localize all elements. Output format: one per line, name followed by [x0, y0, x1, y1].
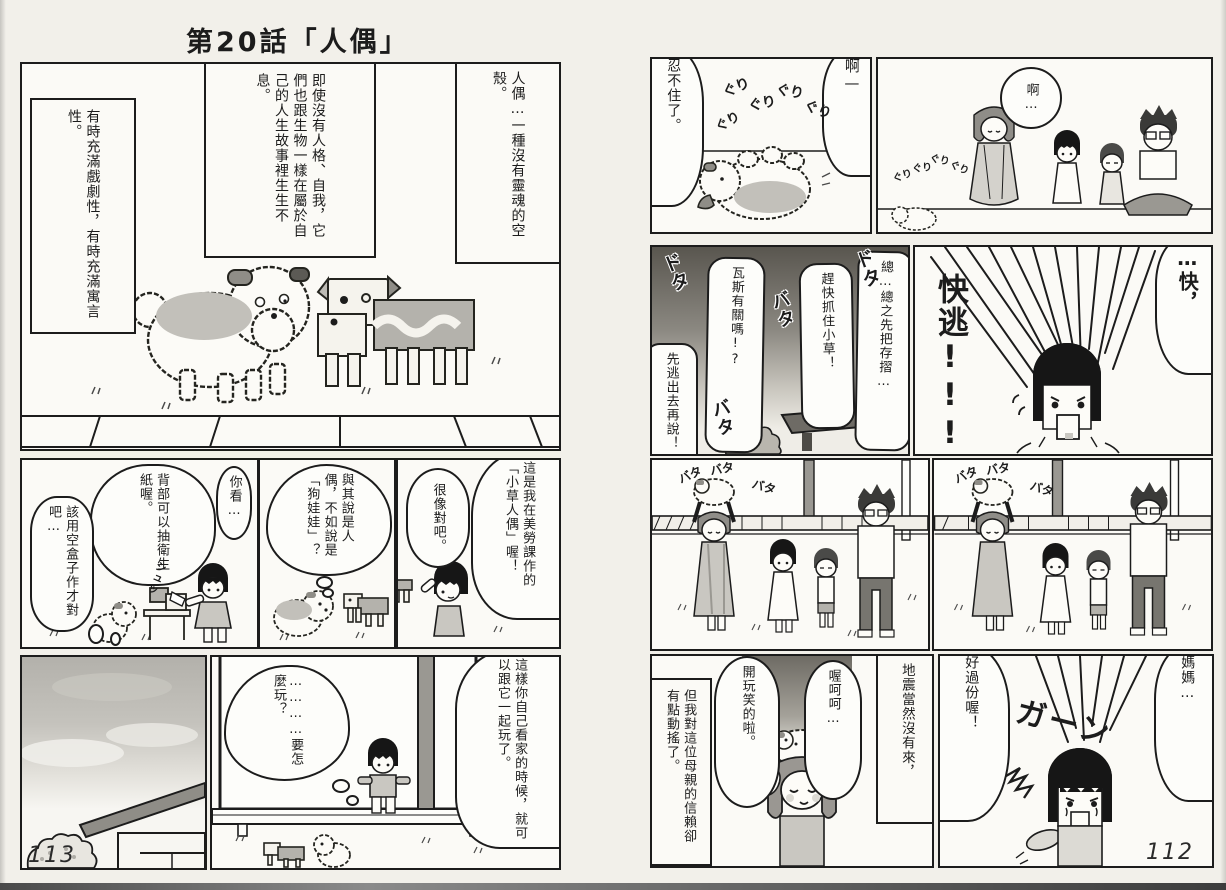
- bubble-ah2-text: 啊…: [1022, 83, 1039, 113]
- bubble-passbook-text: 總…總之先把存摺…: [874, 260, 894, 442]
- thought-box-text: 該用空盒子作才對吧…: [45, 505, 79, 623]
- page-number-left: 113: [28, 843, 76, 868]
- bubble-cant-resist-text: 忍不住了。: [664, 58, 682, 198]
- box-trust: 但我對這位母親的信賴卻有點動搖了。: [650, 678, 712, 866]
- thought-box-empty: 該用空盒子作才對吧…: [30, 496, 94, 632]
- bubble-alike: 很像對吧。: [406, 468, 470, 568]
- panel-upset: 媽媽… 好過份喔！ ガーン: [938, 654, 1214, 868]
- bubble-mama: 媽媽…: [1154, 654, 1214, 802]
- bubble-ah-dash-text: 啊—: [841, 58, 861, 168]
- box-trust-text: 但我對這位母親的信賴卻有點動搖了。: [663, 689, 697, 855]
- scan-edge-left: [0, 0, 6, 890]
- bubble-quick-text: …快，: [1174, 246, 1200, 366]
- bubble-play-text: 這樣你自己看家的時候，就可以跟它一起玩了。: [494, 658, 528, 840]
- thought-tail-2: [110, 632, 121, 646]
- bubble-grab: 趕快抓住小草！: [799, 263, 856, 430]
- panel-run: …快， 快逃!!!: [913, 245, 1213, 456]
- thought-tail-1: [88, 624, 104, 644]
- bubble-ohoho: 喔呵呵…: [804, 660, 862, 800]
- caption-drama-text: 有時充滿戲劇性，有時充滿寓言性。: [65, 109, 102, 323]
- panel-panic: 總…總之先把存摺… 趕快抓住小草！ 瓦斯有關嗎!? 先逃出去再說！ ドタ バタ …: [650, 245, 910, 456]
- scan-edge-bottom: [0, 883, 1226, 890]
- dogdoll-tail-1: [316, 576, 333, 589]
- bubble-escape: 先逃出去再說！: [650, 343, 698, 456]
- bubble-cant-resist: 忍不住了。: [650, 57, 704, 207]
- bubble-too-much-text: 好過份喔！: [962, 655, 980, 813]
- page-number-right: 112: [1146, 840, 1194, 865]
- sfx-bata-o2b: バタ: [985, 458, 1011, 478]
- sky-drawing: [22, 657, 205, 868]
- thought-dogdoll: 與其說是人偶，不如說是「狗娃娃」？: [266, 464, 392, 576]
- bubble-grab-text: 趕快抓住小草！: [817, 272, 837, 420]
- caption-doll-box: 人偶…一種沒有靈魂的空殼。: [455, 62, 561, 264]
- bubble-ah2: 啊…: [1000, 67, 1062, 129]
- bubble-craft-intro: 這是我在美勞課作的「小草人偶」喔！: [471, 458, 561, 620]
- thought-dogdoll-text: 與其說是人偶，不如說是「狗娃娃」？: [303, 473, 354, 567]
- panel-tissue: 你看… 背部可以抽衛生紙喔。 該用空盒子作才對吧… シュッ: [20, 458, 259, 649]
- box-earthquake-text: 地震當然沒有來，: [897, 663, 915, 813]
- chapter-title: 第20話「人偶」: [186, 20, 410, 59]
- caption-life-text: 即使沒有人格、自我，它們也跟生物一樣在屬於自己的人生故事裡生生不息。: [253, 73, 327, 247]
- thought-how: …………要怎麼玩？: [224, 665, 350, 781]
- bubble-alike-text: 很像對吧。: [429, 483, 446, 553]
- bubble-look: 你看…: [216, 466, 252, 540]
- bubble-craft-intro-text: 這是我在美勞課作的「小草人偶」喔！: [502, 461, 536, 611]
- panel-outside-1: バタ バタ バタ: [650, 458, 930, 651]
- how-tail-1: [332, 779, 350, 793]
- caption-drama-box: 有時充滿戲劇性，有時充滿寓言性。: [30, 98, 136, 334]
- thought-how-text: …………要怎麼玩？: [270, 674, 304, 772]
- panel-craft: 這是我在美勞課作的「小草人偶」喔！ 很像對吧。: [396, 458, 561, 649]
- panel-joke: 地震當然沒有來， 喔呵呵… 開玩笑的啦。 但我對這位母親的信賴卻有點動搖了。: [650, 654, 934, 868]
- panel-intro: 人偶…一種沒有靈魂的空殼。 即使沒有人格、自我，它們也跟生物一樣在屬於自己的人生…: [20, 62, 561, 451]
- caption-doll-text: 人偶…一種沒有靈魂的空殼。: [490, 71, 527, 253]
- bubble-too-much: 好過份喔！: [938, 654, 1010, 822]
- bubble-play: 這樣你自己看家的時候，就可以跟它一起玩了。: [455, 655, 561, 849]
- bubble-joking-text: 開玩笑的啦。: [738, 665, 755, 799]
- outside-drawing-2: [934, 460, 1211, 649]
- dogdoll-tail-2: [322, 588, 334, 598]
- shout-run: 快逃!!!: [929, 273, 970, 453]
- panel-sky: [20, 655, 207, 870]
- caption-life-box: 即使沒有人格、自我，它們也跟生物一樣在屬於自己的人生故事裡生生不息。: [204, 62, 376, 258]
- bubble-joking: 開玩笑的啦。: [714, 656, 780, 808]
- bubble-look-text: 你看…: [225, 475, 242, 531]
- bubble-escape-text: 先逃出去再說！: [662, 352, 679, 456]
- panel-outside-2: バタ バタ バタ: [932, 458, 1213, 651]
- bubble-mama-text: 媽媽…: [1178, 655, 1196, 793]
- outside-drawing-1: [652, 460, 928, 649]
- bubble-ohoho-text: 喔呵呵…: [824, 669, 841, 791]
- how-tail-2: [346, 795, 359, 806]
- panel-window: 這樣你自己看家的時候，就可以跟它一起玩了。 …………要怎麼玩？: [210, 655, 561, 870]
- panel-rolling: 啊— 忍不住了。 ぐり ぐり ぐり ぐり ぐり: [650, 57, 872, 234]
- scan-edge-right: [1220, 0, 1226, 890]
- box-earthquake: 地震當然沒有來，: [876, 654, 934, 824]
- bubble-quick: …快，: [1155, 245, 1213, 375]
- panel-family-watch: 啊… ぐり ぐり ぐり ぐり: [876, 57, 1213, 234]
- panel-dog-doll: 與其說是人偶，不如說是「狗娃娃」？: [258, 458, 396, 649]
